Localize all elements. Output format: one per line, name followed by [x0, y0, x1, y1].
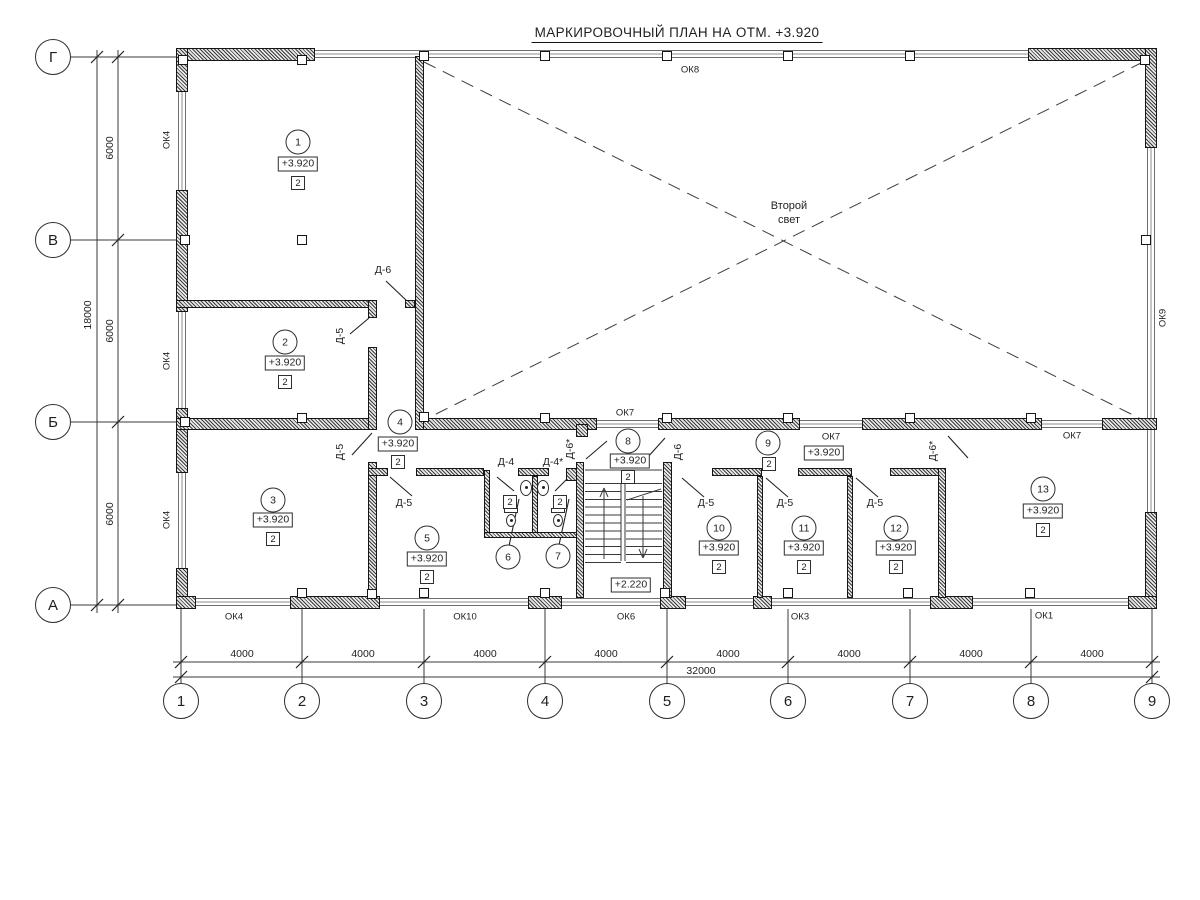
door-label-d6: Д-6: [375, 264, 391, 276]
room-10-type: 2: [712, 560, 726, 574]
window-label-ok4: ОК4: [162, 131, 173, 149]
stair-flight-right: [626, 483, 662, 563]
window-label-ok4: ОК4: [162, 511, 173, 529]
window-label-ok1: ОК1: [1035, 611, 1053, 622]
wall: [1028, 48, 1157, 61]
room-3-number: 3: [261, 488, 286, 513]
column-marker: [783, 51, 793, 61]
door-leaf-d4: [497, 477, 514, 491]
room-1-number: 1: [286, 130, 311, 155]
wall: [862, 418, 1042, 430]
column-marker: [178, 55, 188, 65]
column-marker: [1025, 588, 1035, 598]
room-6-type: 2: [503, 495, 517, 509]
floor-plan: МАРКИРОВОЧНЫЙ ПЛАН НА ОТМ. +3.920: [0, 0, 1200, 900]
window-band-ok7: [800, 420, 862, 428]
wall: [1128, 596, 1157, 609]
room-3-type: 2: [266, 532, 280, 546]
column-marker: [540, 413, 550, 423]
wall: [930, 596, 973, 609]
window-band: [1147, 430, 1155, 512]
column-marker: [903, 588, 913, 598]
dim-32000: 32000: [686, 665, 715, 677]
axis-col-5: 5: [649, 683, 685, 719]
wall: [576, 462, 584, 598]
window-label-ok7: ОК7: [1063, 431, 1081, 442]
dim-18000: 18000: [82, 300, 94, 329]
axis-col-1: 1: [163, 683, 199, 719]
room-3-elevation: +3.920: [253, 513, 293, 528]
door-leaf-d6s: [948, 436, 968, 458]
axis-col-9: 9: [1134, 683, 1170, 719]
room-9-elevation: +3.920: [804, 446, 844, 461]
window-band-ok4: [178, 92, 186, 190]
room-2-type: 2: [278, 375, 292, 389]
door-leaf-d5: [766, 478, 788, 497]
room-11-number: 11: [792, 516, 817, 541]
room-8-number: 8: [616, 429, 641, 454]
room-9-number: 9: [756, 431, 781, 456]
column-marker: [783, 413, 793, 423]
wall: [484, 532, 580, 538]
dim-6000: 6000: [104, 319, 116, 342]
door-label-d4s: Д-4*: [543, 456, 564, 468]
room-13-elevation: +3.920: [1023, 504, 1063, 519]
room-12-elevation: +3.920: [876, 541, 916, 556]
door-label-d5: Д-5: [698, 497, 714, 509]
wall: [176, 300, 377, 308]
door-label-d5: Д-5: [777, 497, 793, 509]
wall: [712, 468, 762, 476]
room-11-elevation: +3.920: [784, 541, 824, 556]
column-marker: [660, 588, 670, 598]
axis-col-6: 6: [770, 683, 806, 719]
door-leaf-d5: [350, 318, 369, 334]
room-13-type: 2: [1036, 523, 1050, 537]
wall: [484, 470, 490, 538]
wall: [1145, 512, 1157, 609]
window-band-ok4: [178, 312, 186, 408]
wall: [1102, 418, 1157, 430]
column-marker: [1141, 235, 1151, 245]
wall: [368, 462, 377, 598]
door-label-d4: Д-4: [498, 456, 514, 468]
axis-row-a: А: [35, 587, 71, 623]
room-10-elevation: +3.920: [699, 541, 739, 556]
column-marker: [1026, 413, 1036, 423]
room-12-number: 12: [884, 516, 909, 541]
room-4-number: 4: [388, 410, 413, 435]
wall: [418, 418, 597, 430]
column-marker: [1140, 55, 1150, 65]
wall: [415, 56, 424, 430]
column-marker: [540, 588, 550, 598]
second-light-label: Второй свет: [771, 199, 807, 227]
window-label-ok10: ОК10: [453, 612, 477, 623]
door-leaf-d5: [682, 478, 704, 497]
column-marker: [662, 51, 672, 61]
wall: [576, 424, 588, 437]
door-label-d5: Д-5: [867, 497, 883, 509]
room-8-elevation: +3.920: [610, 454, 650, 469]
door-leaf-d6s: [586, 441, 607, 459]
column-marker: [905, 51, 915, 61]
stair-flight-left: [585, 483, 621, 563]
axis-col-4: 4: [527, 683, 563, 719]
column-marker: [297, 235, 307, 245]
column-marker: [662, 413, 672, 423]
wall: [368, 300, 377, 318]
wall: [405, 300, 415, 308]
window-band-ok7: [597, 420, 658, 428]
window-label-ok8: ОК8: [681, 65, 699, 76]
axis-col-7: 7: [892, 683, 928, 719]
door-label-d5: Д-5: [396, 497, 412, 509]
column-marker: [180, 235, 190, 245]
wall: [176, 190, 188, 312]
wall: [518, 468, 549, 476]
room-5-type: 2: [420, 570, 434, 584]
door-label-d5: Д-5: [334, 444, 346, 460]
column-marker: [297, 588, 307, 598]
column-marker: [367, 589, 377, 599]
wall: [847, 476, 853, 598]
axis-row-g: Г: [35, 39, 71, 75]
room-8-type: 2: [621, 470, 635, 484]
room-1-elevation: +3.920: [278, 157, 318, 172]
column-marker: [180, 417, 190, 427]
washbasin-drain: [542, 486, 545, 489]
dim-4000: 4000: [594, 648, 617, 660]
dim-6000: 6000: [104, 136, 116, 159]
window-label-ok7: ОК7: [616, 408, 634, 419]
dim-4000: 4000: [230, 648, 253, 660]
door-label-d6s: Д-6*: [927, 441, 939, 462]
room-2-elevation: +3.920: [265, 356, 305, 371]
column-marker: [540, 51, 550, 61]
wall: [368, 468, 388, 476]
window-label-ok6: ОК6: [617, 612, 635, 623]
dim-6000: 6000: [104, 502, 116, 525]
window-label-ok9: ОК9: [1158, 309, 1169, 327]
column-marker: [297, 413, 307, 423]
door-leaf-d5: [352, 433, 372, 455]
room-11-type: 2: [797, 560, 811, 574]
wall: [658, 418, 800, 430]
stair-elevation: +2.220: [611, 578, 651, 593]
door-label-d6s: Д-6*: [564, 439, 576, 460]
door-leaf-d6: [386, 281, 408, 302]
column-marker: [783, 588, 793, 598]
toilet-drain: [510, 519, 513, 522]
door-leaf-d5: [856, 478, 878, 497]
wall: [757, 476, 763, 598]
room-2-number: 2: [273, 330, 298, 355]
wall: [938, 468, 946, 598]
axis-col-2: 2: [284, 683, 320, 719]
room-13-number: 13: [1031, 477, 1056, 502]
axis-row-b: Б: [35, 404, 71, 440]
room-12-type: 2: [889, 560, 903, 574]
window-band-ok7: [1042, 420, 1102, 428]
room-4-type: 2: [391, 455, 405, 469]
window-label-ok4: ОК4: [162, 352, 173, 370]
axis-row-v: В: [35, 222, 71, 258]
window-label-ok3: ОК3: [791, 612, 809, 623]
toilet-drain: [557, 519, 560, 522]
wall: [176, 596, 196, 609]
axis-col-8: 8: [1013, 683, 1049, 719]
column-marker: [905, 413, 915, 423]
dim-4000: 4000: [351, 648, 374, 660]
room-7-number: 7: [546, 544, 571, 569]
window-label-ok4: ОК4: [225, 612, 243, 623]
wall: [890, 468, 941, 476]
dim-4000: 4000: [473, 648, 496, 660]
dim-4000: 4000: [837, 648, 860, 660]
axis-col-3: 3: [406, 683, 442, 719]
wall: [176, 48, 315, 61]
wall: [663, 462, 672, 598]
window-label-ok7: ОК7: [822, 432, 840, 443]
column-marker: [419, 588, 429, 598]
wall: [798, 468, 852, 476]
room-7-type: 2: [553, 495, 567, 509]
room-9-type: 2: [762, 457, 776, 471]
room-5-number: 5: [415, 526, 440, 551]
room-1-type: 2: [291, 176, 305, 190]
room-6-number: 6: [496, 545, 521, 570]
washbasin-drain: [525, 486, 528, 489]
column-marker: [297, 55, 307, 65]
door-label-d5: Д-5: [334, 328, 346, 344]
column-marker: [419, 412, 429, 422]
door-leaf-d5: [390, 477, 412, 496]
wall: [416, 468, 484, 476]
window-band-ok9: [1147, 148, 1155, 422]
room-5-elevation: +3.920: [407, 552, 447, 567]
door-label-d6: Д-6: [672, 444, 684, 460]
wall: [368, 347, 377, 430]
dim-4000: 4000: [959, 648, 982, 660]
wall: [176, 418, 372, 430]
dim-4000: 4000: [1080, 648, 1103, 660]
room-10-number: 10: [707, 516, 732, 541]
column-marker: [419, 51, 429, 61]
dim-4000: 4000: [716, 648, 739, 660]
room-4-elevation: +3.920: [378, 437, 418, 452]
window-band-ok4: [178, 473, 186, 568]
